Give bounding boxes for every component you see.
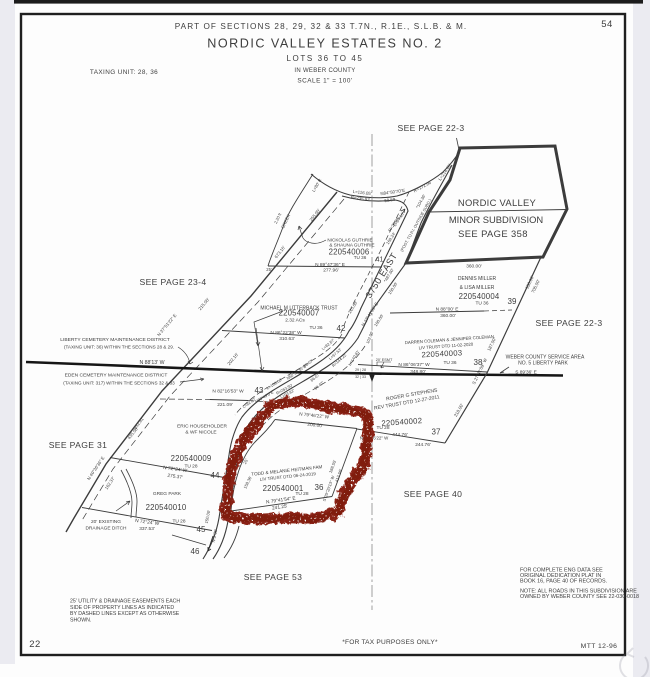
svg-text:337.53': 337.53' <box>139 526 155 532</box>
svg-text:DRAINAGE DITCH: DRAINAGE DITCH <box>85 526 127 532</box>
svg-text:N 86°06'37" W: N 86°06'37" W <box>398 362 430 368</box>
svg-text:310.63': 310.63' <box>279 336 295 342</box>
svg-text:TU 28: TU 28 <box>172 519 185 525</box>
svg-text:42: 42 <box>337 324 346 333</box>
svg-text:SEE PAGE 358: SEE PAGE 358 <box>458 228 528 239</box>
svg-text:39: 39 <box>508 297 517 306</box>
svg-text:37: 37 <box>432 428 441 437</box>
svg-text:SEE PAGE 23-4: SEE PAGE 23-4 <box>140 277 207 287</box>
svg-text:LOTS 36 TO 45: LOTS 36 TO 45 <box>287 54 364 63</box>
svg-text:& LISA MILLER: & LISA MILLER <box>460 285 495 291</box>
svg-text:220540009: 220540009 <box>171 454 212 463</box>
svg-text:OWNED BY WEBER COUNTY SEE 22-0: OWNED BY WEBER COUNTY SEE 22-030-0018 <box>520 594 639 600</box>
svg-text:36: 36 <box>315 483 324 492</box>
svg-text:SEE PAGE 31: SEE PAGE 31 <box>49 440 108 450</box>
svg-text:20' ESMT: 20' ESMT <box>376 358 393 362</box>
svg-text:41: 41 <box>376 257 384 264</box>
svg-text:20' EXISTING: 20' EXISTING <box>91 519 121 525</box>
svg-text:221.09': 221.09' <box>217 402 233 408</box>
svg-text:TU 36: TU 36 <box>354 255 367 260</box>
svg-text:444.76': 444.76' <box>392 432 408 438</box>
svg-text:348.80': 348.80' <box>410 369 426 375</box>
svg-text:360.00': 360.00' <box>440 313 456 319</box>
svg-text:N 86°22'38" W: N 86°22'38" W <box>270 330 302 336</box>
svg-text:(TAXING UNIT: 36) WITHIN THE S: (TAXING UNIT: 36) WITHIN THE SECTIONS 28… <box>64 345 174 350</box>
svg-text:SHOWN.: SHOWN. <box>70 617 91 623</box>
svg-text:DENNIS MILLER: DENNIS MILLER <box>458 276 497 282</box>
svg-text:IN WEBER COUNTY: IN WEBER COUNTY <box>294 68 355 74</box>
svg-text:22: 22 <box>29 639 41 650</box>
svg-text:SEE PAGE 22-3: SEE PAGE 22-3 <box>398 123 465 133</box>
svg-text:25' UTILITY & DRAINAGE EASEMEN: 25' UTILITY & DRAINAGE EASEMENTS EACH <box>70 599 180 605</box>
svg-text:45: 45 <box>197 525 206 534</box>
svg-text:ERIC HOUSEHOLDER: ERIC HOUSEHOLDER <box>177 424 227 430</box>
svg-text:32 | 33: 32 | 33 <box>355 375 366 379</box>
svg-text:TU 36: TU 36 <box>443 360 456 366</box>
svg-text:29 | 28: 29 | 28 <box>355 368 366 372</box>
svg-text:SCALE 1" = 100': SCALE 1" = 100' <box>297 78 352 85</box>
svg-text:MTT 12-96: MTT 12-96 <box>581 643 618 650</box>
svg-text:BY DASHED LINES EXCEPT AS OTHE: BY DASHED LINES EXCEPT AS OTHERWISE <box>70 611 180 617</box>
svg-text:(TAXING UNIT: 317) WITHIN THE: (TAXING UNIT: 317) WITHIN THE SECTIONS 3… <box>63 381 175 386</box>
svg-text:NORDIC VALLEY: NORDIC VALLEY <box>458 197 537 208</box>
svg-text:277.96': 277.96' <box>323 267 339 273</box>
svg-text:TU 28: TU 28 <box>295 491 308 497</box>
svg-text:EDEN CEMETERY MAINTENANCE DIST: EDEN CEMETERY MAINTENANCE DISTRICT <box>65 373 168 379</box>
svg-text:NORDIC VALLEY ESTATES NO. 2: NORDIC VALLEY ESTATES NO. 2 <box>207 37 443 51</box>
svg-text:TU 36: TU 36 <box>475 300 488 306</box>
svg-text:220540010: 220540010 <box>146 503 187 512</box>
svg-text:PART OF SECTIONS 28, 29, 32 &: PART OF SECTIONS 28, 29, 32 & 33 T.7N., … <box>175 22 468 31</box>
svg-text:N 88'13' W: N 88'13' W <box>139 360 164 366</box>
svg-text:54: 54 <box>601 19 613 30</box>
svg-text:25': 25' <box>266 267 272 272</box>
svg-text:*FOR TAX PURPOSES ONLY*: *FOR TAX PURPOSES ONLY* <box>342 639 438 646</box>
svg-text:N 82°16'53" W: N 82°16'53" W <box>212 389 244 395</box>
svg-text:& WF NICOLE: & WF NICOLE <box>185 430 216 436</box>
svg-text:MINOR SUBDIVISION: MINOR SUBDIVISION <box>449 214 543 225</box>
svg-text:44: 44 <box>211 471 220 480</box>
svg-text:360.00': 360.00' <box>466 263 482 269</box>
svg-text:220540007: 220540007 <box>279 309 320 318</box>
svg-text:N 88°00' E: N 88°00' E <box>436 307 459 313</box>
svg-text:220540004: 220540004 <box>459 292 500 301</box>
svg-text:TU 36: TU 36 <box>309 325 322 331</box>
svg-text:SEE PAGE 53: SEE PAGE 53 <box>244 572 303 582</box>
svg-text:SEE PAGE 40: SEE PAGE 40 <box>404 489 463 499</box>
svg-text:244.76': 244.76' <box>415 442 431 448</box>
svg-text:N 89°47'36" E: N 89°47'36" E <box>315 262 345 268</box>
svg-text:BOOK 16, PAGE 40 OF RECORDS.: BOOK 16, PAGE 40 OF RECORDS. <box>520 579 607 585</box>
svg-text:2.32 ACs: 2.32 ACs <box>285 317 305 323</box>
svg-text:S 89'36' E: S 89'36' E <box>515 370 537 376</box>
svg-text:TU 28: TU 28 <box>376 425 389 431</box>
svg-text:TAXING UNIT: 28, 36: TAXING UNIT: 28, 36 <box>90 69 158 76</box>
svg-text:NO. 5 LIBERTY PARK: NO. 5 LIBERTY PARK <box>518 361 568 367</box>
svg-text:46: 46 <box>191 547 200 556</box>
svg-text:GREG PARK: GREG PARK <box>153 491 182 497</box>
svg-text:SEE PAGE 22-3: SEE PAGE 22-3 <box>536 318 603 328</box>
svg-text:LIBERTY CEMETERY MAINTENANCE D: LIBERTY CEMETERY MAINTENANCE DISTRICT <box>60 337 169 343</box>
svg-text:SIDE OF PROPERTY LINES AS INDI: SIDE OF PROPERTY LINES AS INDICATED <box>70 605 174 611</box>
